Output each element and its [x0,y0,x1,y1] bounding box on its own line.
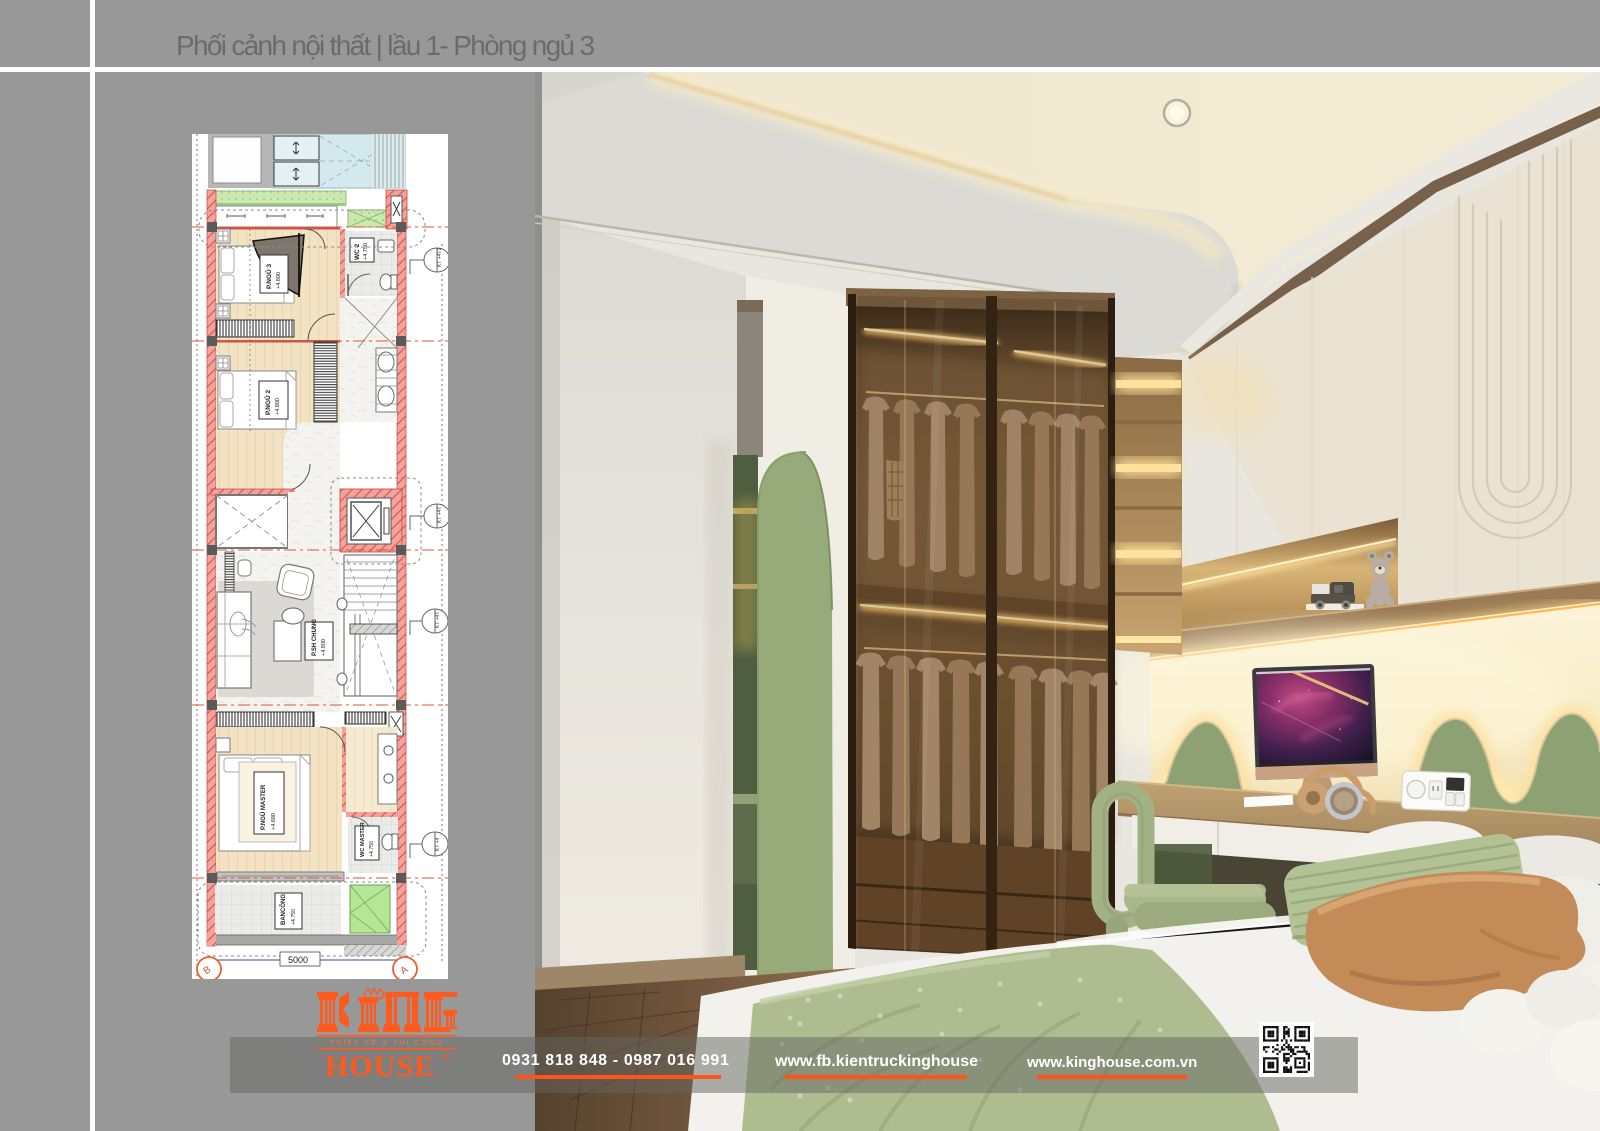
svg-text:5000: 5000 [288,955,308,965]
svg-text:THIẾT KẾ & THI CÔNG: THIẾT KẾ & THI CÔNG [330,1037,444,1047]
svg-text:+4.750: +4.750 [369,841,375,857]
svg-text:KT +4T1: KT +4T1 [437,248,443,267]
svg-text:CÔNG: CÔNG [279,894,287,912]
svg-text:+4.800: +4.800 [275,398,281,415]
svg-text:+4.680: +4.680 [271,813,277,830]
svg-text:P.NGỦ MASTER: P.NGỦ MASTER [260,784,267,830]
svg-text:P.SH CHUNG: P.SH CHUNG [312,619,318,656]
svg-text:+4.800: +4.800 [276,272,282,289]
svg-text:®: ® [441,1051,449,1063]
svg-text:HOUSE: HOUSE [325,1050,435,1083]
svg-text:BAN: BAN [281,912,287,925]
svg-text:P.NGỦ 2: P.NGỦ 2 [263,389,272,415]
svg-text:+4.750: +4.750 [363,243,369,260]
svg-text:+4.750: +4.750 [291,909,297,925]
svg-text:KT +4T: KT +4T [435,612,441,628]
svg-text:KT +4T: KT +4T [437,507,443,523]
svg-text:KT +4: KT +4 [435,837,441,851]
svg-text:MASTER: MASTER [360,822,366,846]
svg-text:+4.800: +4.800 [321,639,327,656]
svg-text:WC: WC [360,848,366,857]
svg-text:WC 2: WC 2 [354,243,361,260]
svg-text:P.NGỦ 3: P.NGỦ 3 [264,263,273,289]
